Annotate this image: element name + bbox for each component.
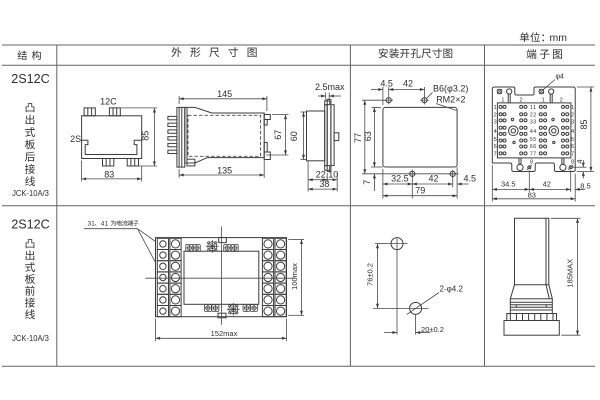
svg-text:152max: 152max bbox=[211, 329, 238, 338]
svg-text:7: 7 bbox=[494, 152, 497, 158]
svg-text:83: 83 bbox=[104, 169, 114, 179]
svg-text:8: 8 bbox=[571, 160, 574, 166]
svg-text:mm: mm bbox=[550, 32, 568, 44]
svg-text:63: 63 bbox=[363, 131, 373, 141]
svg-text:67: 67 bbox=[273, 130, 283, 140]
svg-text:4.5: 4.5 bbox=[380, 79, 393, 89]
svg-text:76±0.2: 76±0.2 bbox=[365, 263, 374, 286]
svg-text:79: 79 bbox=[415, 185, 425, 195]
svg-text:8: 8 bbox=[530, 160, 533, 166]
svg-text:20±0.2: 20±0.2 bbox=[421, 325, 444, 334]
svg-text:2: 2 bbox=[571, 112, 574, 118]
svg-text:2S12C: 2S12C bbox=[11, 72, 50, 86]
svg-text:31: 31 bbox=[88, 220, 96, 227]
svg-text:RM2×2: RM2×2 bbox=[436, 94, 465, 104]
svg-text:7: 7 bbox=[362, 180, 372, 185]
svg-text:8.5: 8.5 bbox=[580, 181, 590, 190]
svg-text:135: 135 bbox=[217, 166, 232, 176]
svg-text:83: 83 bbox=[528, 191, 536, 200]
svg-text:85: 85 bbox=[579, 119, 589, 129]
svg-text:4: 4 bbox=[533, 129, 536, 135]
svg-text:34.5: 34.5 bbox=[501, 179, 516, 188]
svg-text:7: 7 bbox=[571, 152, 574, 158]
svg-text:85: 85 bbox=[140, 131, 150, 141]
svg-text:6: 6 bbox=[494, 144, 497, 150]
svg-text:3: 3 bbox=[571, 120, 574, 126]
svg-text:38: 38 bbox=[319, 179, 329, 189]
svg-text:32.5: 32.5 bbox=[391, 174, 409, 184]
svg-text:JCK-10A/3: JCK-10A/3 bbox=[12, 334, 49, 343]
svg-text:4.5: 4.5 bbox=[464, 174, 477, 184]
svg-text:2: 2 bbox=[494, 112, 497, 118]
svg-text:12C: 12C bbox=[100, 97, 117, 107]
svg-text:42: 42 bbox=[428, 174, 438, 184]
svg-text:2.5max: 2.5max bbox=[315, 82, 345, 92]
svg-text:5: 5 bbox=[533, 137, 536, 143]
svg-text:5: 5 bbox=[494, 137, 497, 143]
svg-text:1: 1 bbox=[571, 105, 574, 111]
svg-text:1: 1 bbox=[533, 105, 536, 111]
svg-text:JCK-10A/3: JCK-10A/3 bbox=[12, 189, 49, 198]
svg-text:5: 5 bbox=[571, 137, 574, 143]
svg-text:22,10: 22,10 bbox=[316, 169, 339, 179]
svg-text:145: 145 bbox=[217, 89, 232, 99]
svg-text:2: 2 bbox=[533, 112, 536, 118]
svg-text:4: 4 bbox=[494, 129, 497, 135]
svg-text:7: 7 bbox=[533, 152, 536, 158]
svg-text:77: 77 bbox=[353, 133, 363, 143]
svg-text:3: 3 bbox=[494, 120, 497, 126]
svg-text:φ4: φ4 bbox=[556, 74, 565, 81]
svg-text:3: 3 bbox=[533, 120, 536, 126]
svg-text:42: 42 bbox=[403, 79, 413, 89]
svg-text:185MAX: 185MAX bbox=[565, 259, 574, 288]
svg-text:1: 1 bbox=[494, 105, 497, 111]
svg-text:2-φ4.2: 2-φ4.2 bbox=[440, 284, 464, 293]
svg-text:B6(φ3.2): B6(φ3.2) bbox=[433, 83, 468, 93]
svg-text:2S12C: 2S12C bbox=[11, 217, 50, 231]
svg-text:41: 41 bbox=[101, 220, 109, 227]
svg-text:6: 6 bbox=[571, 144, 574, 150]
svg-text:60: 60 bbox=[289, 131, 299, 141]
svg-text:2S: 2S bbox=[70, 134, 81, 144]
svg-text:4: 4 bbox=[571, 129, 574, 135]
svg-text:100max: 100max bbox=[290, 263, 299, 290]
svg-text:42: 42 bbox=[543, 179, 551, 188]
svg-text:6: 6 bbox=[533, 144, 536, 150]
svg-text:4: 4 bbox=[575, 159, 584, 163]
